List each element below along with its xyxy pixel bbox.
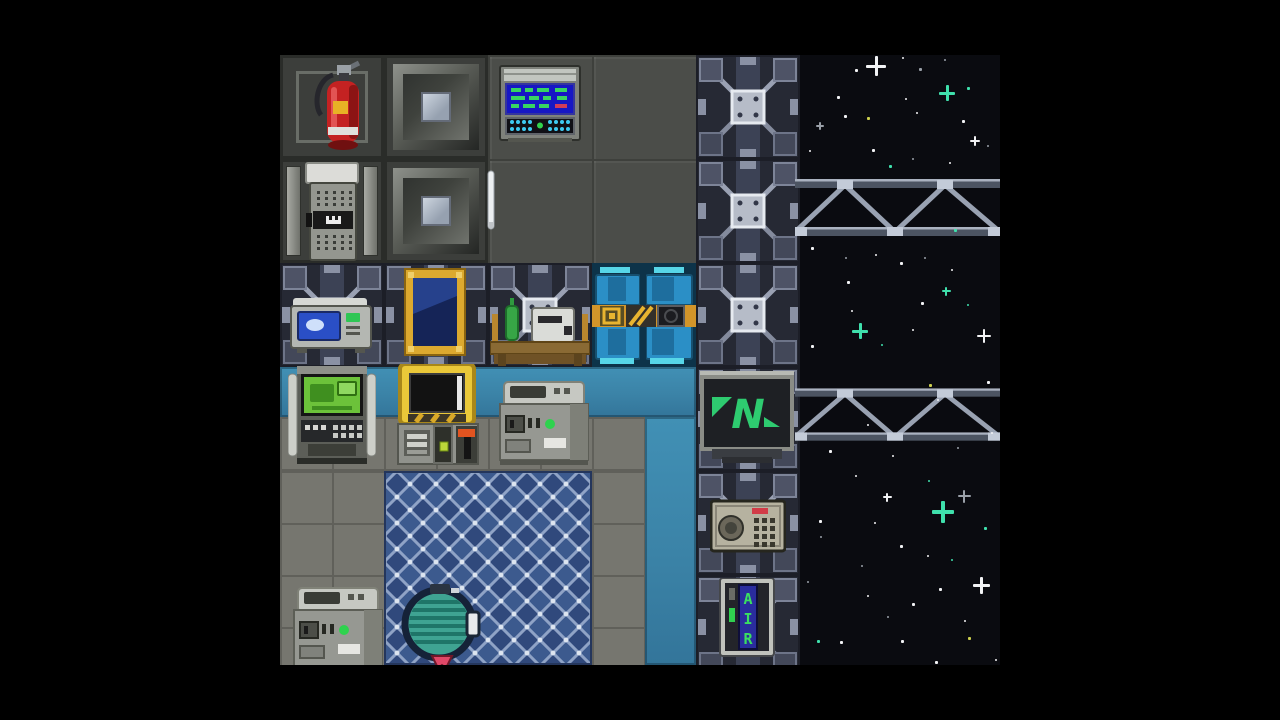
star — [892, 455, 894, 457]
svg-text:R: R — [743, 630, 753, 648]
star-sparkle — [977, 329, 991, 343]
star — [887, 616, 889, 618]
airlock-door[interactable] — [592, 263, 696, 367]
space-truss — [795, 382, 1000, 448]
star-sparkle — [816, 122, 824, 130]
reinforced-wall-tile — [696, 159, 800, 263]
star — [964, 620, 966, 622]
star — [916, 112, 918, 114]
letterbox-top — [280, 0, 1000, 55]
star-sparkle — [942, 287, 951, 296]
photocopier[interactable] — [288, 584, 388, 665]
star — [905, 98, 907, 100]
star-sparkle — [866, 56, 886, 76]
star — [927, 555, 929, 557]
star — [855, 475, 857, 477]
fire-extinguisher[interactable] — [297, 57, 377, 157]
door-frame-strip — [363, 166, 378, 256]
wall-bevel — [393, 64, 479, 150]
star — [902, 57, 904, 59]
wall-bevel — [393, 168, 479, 254]
svg-text:I: I — [743, 610, 752, 628]
star — [820, 536, 822, 538]
wall-console[interactable] — [499, 60, 581, 146]
star — [817, 640, 820, 643]
painting[interactable] — [404, 267, 466, 357]
star — [935, 661, 938, 664]
star-sparkle — [970, 136, 980, 146]
svg-text:N: N — [731, 392, 764, 438]
star — [874, 522, 876, 524]
star — [928, 480, 930, 482]
star — [995, 659, 997, 661]
maintenance-door[interactable] — [299, 161, 365, 262]
yellow-console-machine[interactable] — [396, 364, 480, 466]
table-with-items[interactable] — [490, 288, 590, 366]
star — [957, 447, 959, 449]
star — [951, 559, 953, 561]
star — [889, 165, 892, 168]
pen-item[interactable] — [486, 170, 496, 234]
star — [967, 304, 969, 306]
star — [837, 96, 840, 99]
star — [924, 257, 926, 259]
space-truss — [795, 172, 1000, 244]
star — [829, 450, 832, 453]
star — [949, 162, 951, 164]
star — [919, 68, 922, 71]
reinforced-wall-tile — [696, 55, 800, 159]
star — [900, 545, 903, 548]
pool-drain[interactable] — [396, 584, 482, 665]
portable-generator[interactable] — [494, 378, 594, 466]
wall-tile-panel — [384, 55, 488, 159]
star — [840, 641, 843, 644]
star — [962, 120, 965, 123]
star — [944, 59, 946, 61]
star — [951, 269, 953, 271]
star-sparkle — [939, 85, 955, 101]
star — [987, 381, 990, 384]
star-sparkle — [958, 490, 971, 503]
gray-floor — [592, 471, 645, 665]
star — [929, 384, 932, 387]
star — [954, 229, 957, 232]
star-sparkle — [883, 493, 892, 502]
star — [844, 115, 847, 118]
star-sparkle — [973, 577, 990, 594]
teal-wall-strip — [645, 417, 696, 665]
reinforced-wall-tile — [696, 263, 800, 367]
star — [872, 149, 875, 152]
star — [875, 254, 877, 256]
star — [819, 520, 822, 523]
star — [881, 344, 883, 346]
star — [984, 527, 987, 530]
intercom[interactable] — [710, 497, 786, 555]
star — [851, 310, 853, 312]
star — [845, 257, 847, 259]
star — [867, 424, 869, 426]
microwave[interactable] — [289, 294, 373, 356]
star-sparkle — [932, 501, 954, 523]
space-background — [800, 55, 1000, 665]
air-alarm[interactable]: AIR — [717, 578, 777, 660]
star — [809, 150, 811, 152]
star — [861, 565, 863, 567]
brand-sign[interactable]: N — [700, 371, 794, 463]
letterbox-left — [0, 0, 280, 720]
star — [991, 432, 993, 434]
star — [921, 302, 924, 305]
star — [867, 595, 869, 597]
wall-tile-panel — [384, 159, 488, 263]
star — [968, 637, 971, 640]
svg-text:A: A — [743, 590, 752, 608]
star — [901, 640, 904, 643]
letterbox-bottom — [280, 665, 1000, 720]
star — [912, 329, 914, 331]
star — [807, 581, 809, 583]
star — [967, 87, 970, 90]
star — [900, 262, 903, 265]
star — [847, 281, 850, 284]
star-sparkle — [852, 323, 868, 339]
atm-machine[interactable] — [288, 366, 376, 466]
game-viewport: NAIR — [280, 55, 1000, 665]
star — [987, 145, 989, 147]
star — [937, 399, 939, 401]
game-screenshot: NAIR — [0, 0, 1280, 720]
star — [912, 603, 915, 606]
star — [855, 69, 858, 72]
star — [912, 158, 914, 160]
star — [811, 247, 814, 250]
star — [939, 588, 942, 591]
star — [867, 117, 870, 120]
star — [811, 345, 814, 348]
letterbox-right — [1000, 0, 1280, 720]
